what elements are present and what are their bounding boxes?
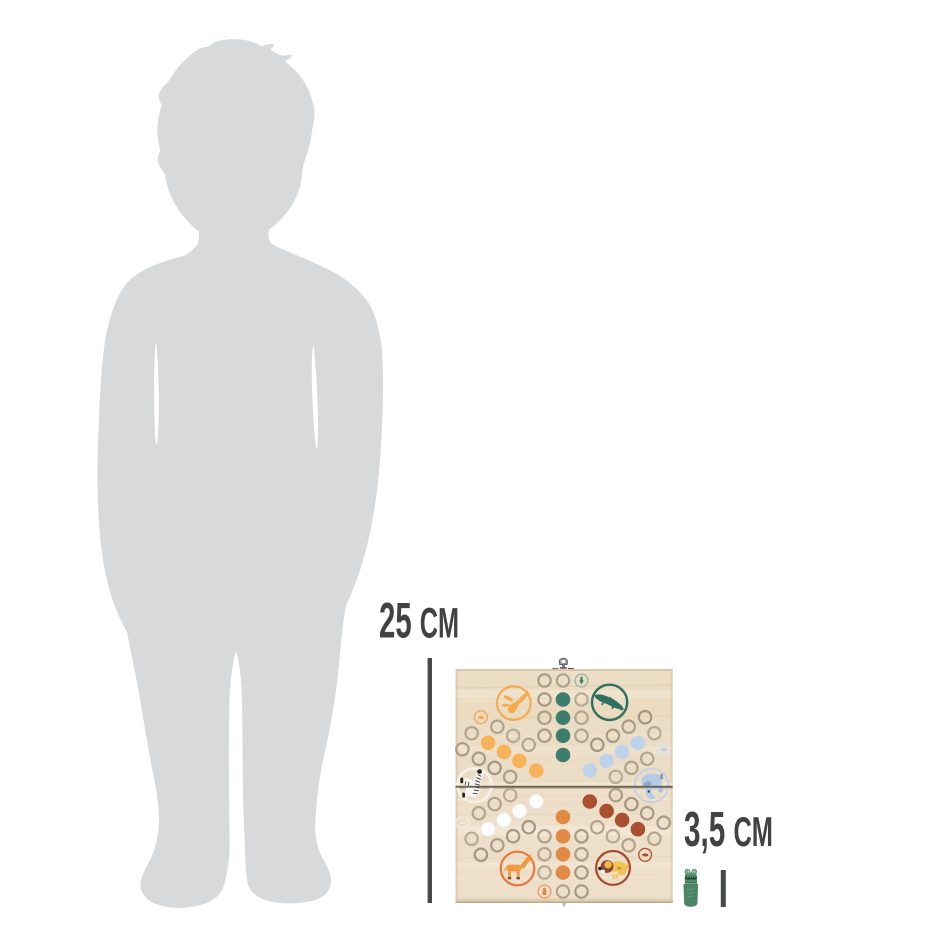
svg-text:25 CM: 25 CM [379, 592, 459, 648]
svg-text:3,5 CM: 3,5 CM [684, 802, 773, 857]
